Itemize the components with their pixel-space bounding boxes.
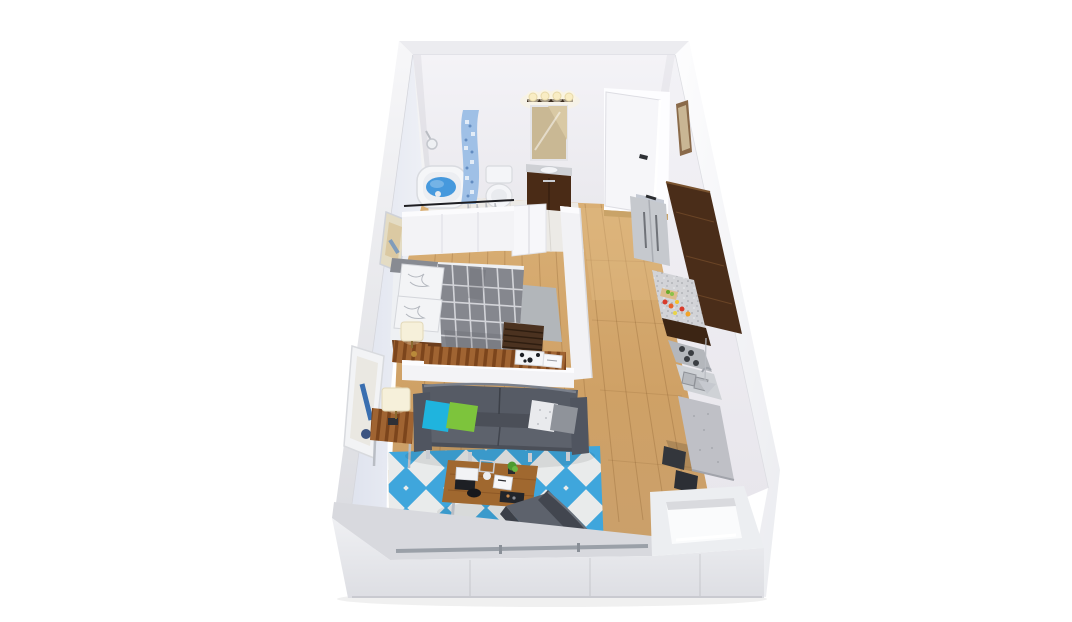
pillow-green xyxy=(446,402,478,432)
tray-bottle-1 xyxy=(506,494,509,497)
shower-curtain xyxy=(461,110,479,204)
rail-post-1 xyxy=(499,545,502,554)
bathtub xyxy=(417,166,467,208)
pillow-gray xyxy=(550,404,578,434)
black-bowl xyxy=(467,489,481,498)
sofa-back-split xyxy=(499,388,500,414)
living-art-navy-blob xyxy=(361,429,371,439)
sink-basin-left xyxy=(682,372,696,386)
vanity-sink-bowl xyxy=(540,167,558,174)
back-wall-top-rim xyxy=(399,41,689,55)
curtain-fabric xyxy=(461,110,479,204)
bed-lamp-shade xyxy=(401,322,423,341)
bed-bench xyxy=(502,322,544,352)
white-sphere xyxy=(483,472,491,480)
living-lamp-shade xyxy=(382,388,410,411)
toilet-tank xyxy=(486,166,512,183)
plant-leaves-light xyxy=(512,466,518,472)
rail-post-2 xyxy=(577,543,580,552)
side-table-item xyxy=(388,418,398,425)
tub-water-highlight xyxy=(430,180,444,188)
white-card xyxy=(493,475,513,490)
floor-plan-render xyxy=(0,0,1072,622)
magazine-white xyxy=(456,467,479,481)
apartment-svg xyxy=(0,0,1072,622)
refrigerator xyxy=(630,196,670,266)
tub-drain-cap xyxy=(435,191,441,197)
entry-nook xyxy=(650,486,764,556)
door-leaf xyxy=(605,92,660,214)
nightstand-trinket xyxy=(411,351,417,357)
tray-bottle-2 xyxy=(512,496,515,499)
vanity-drawer-handle xyxy=(543,180,555,182)
